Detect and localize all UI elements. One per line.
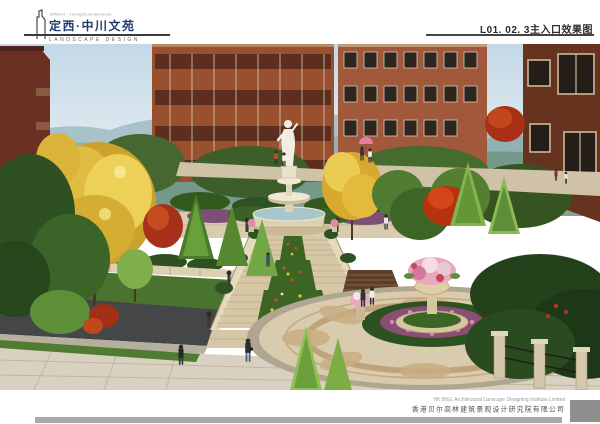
project-title: 定西·中川文苑 (49, 17, 136, 34)
logo-rule (24, 34, 170, 36)
footer-corner-block (570, 400, 600, 422)
footer-bar (35, 417, 562, 423)
sheet-title-underline (426, 34, 594, 36)
logo-tagline: DINGXI - zhongchuanwenyuan (50, 12, 112, 17)
rendering-image (0, 44, 600, 390)
company-name-cn: 香港贝尔高林建筑景观设计研究院有限公司 (412, 404, 565, 414)
company-name-en: HK BIGL Architectural Lanscape Designing… (433, 397, 565, 403)
logo-subtitle: LANDSCAPE DESIGN (49, 37, 140, 43)
right-hedge-fence (465, 254, 600, 390)
